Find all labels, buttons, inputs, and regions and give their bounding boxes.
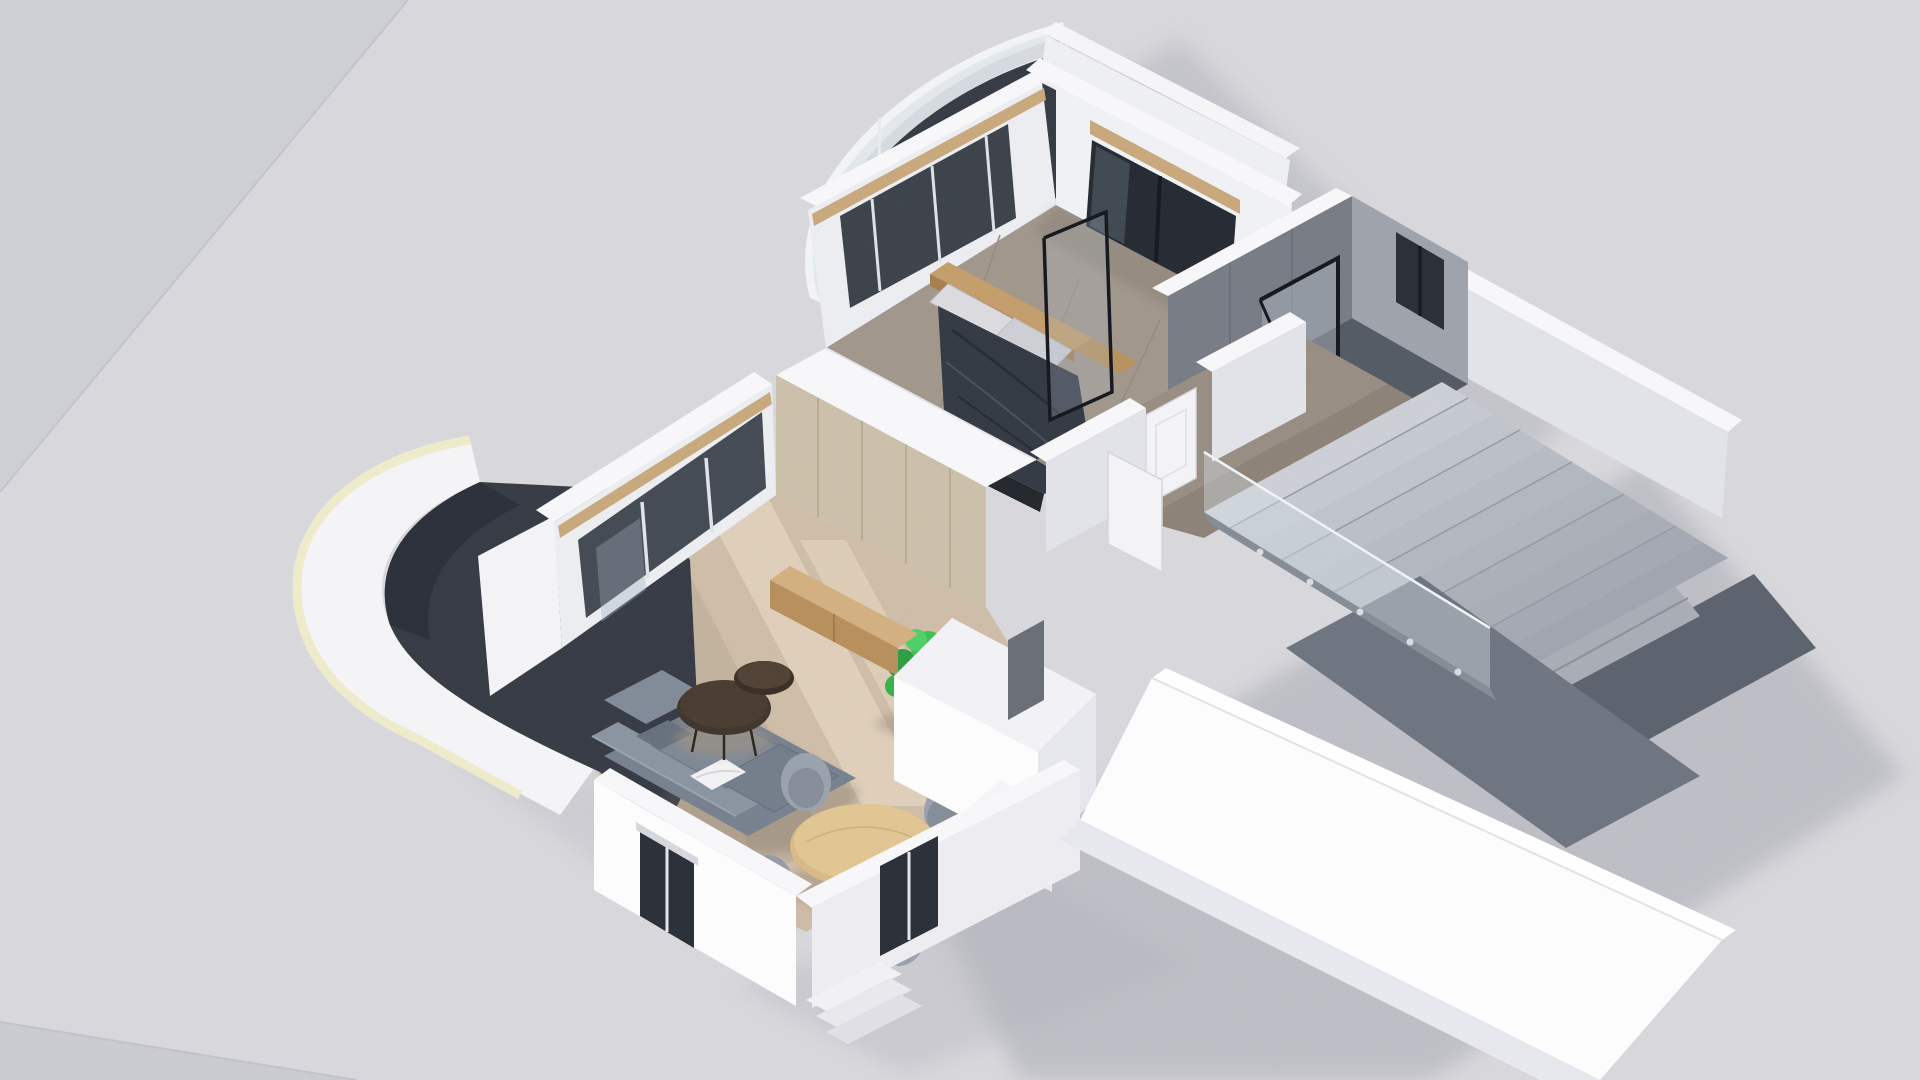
render-canvas xyxy=(0,0,1920,1080)
grain-texture xyxy=(0,0,1920,1080)
floorplan-render xyxy=(0,0,1920,1080)
